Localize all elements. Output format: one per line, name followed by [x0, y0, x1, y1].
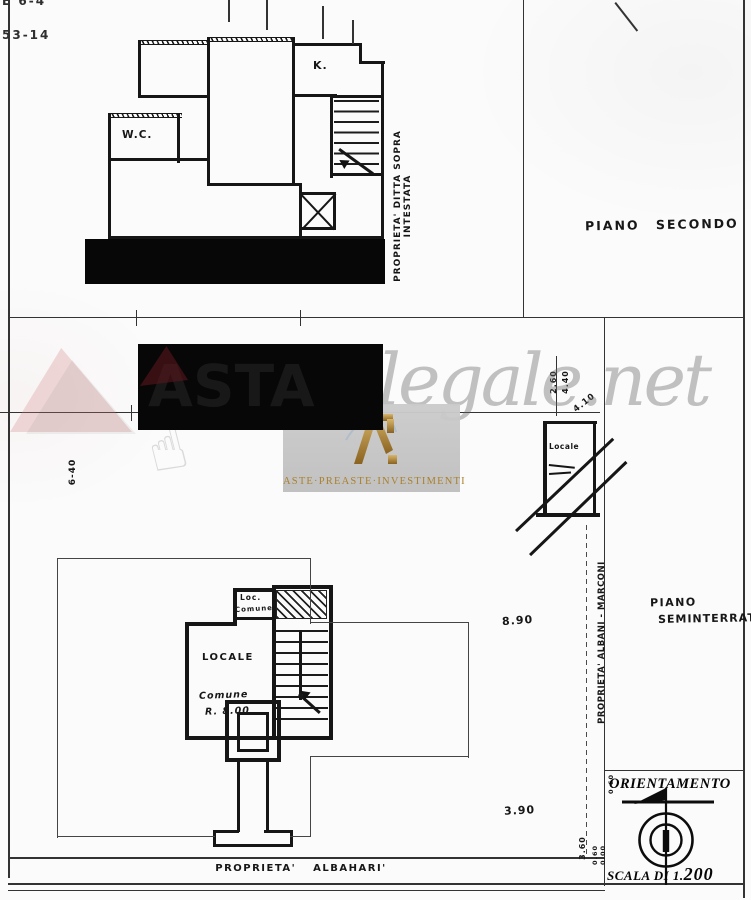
sheet-line: [743, 0, 745, 898]
wall-segment: [329, 585, 333, 740]
basement-loc-label: Loc.: [240, 593, 261, 602]
wall-segment: [330, 95, 383, 98]
wall-segment: [237, 762, 240, 832]
sheet-line: [604, 770, 744, 771]
sheet-line: [310, 622, 469, 623]
sheet-line: [276, 630, 328, 720]
sheet-line: [615, 2, 638, 31]
wall-segment: [177, 113, 180, 163]
wall-segment: [299, 192, 336, 195]
sheet-line: [300, 310, 301, 326]
basement-owner-note: PROPRIETA' ALBANI - MARCONI: [597, 540, 607, 745]
wall-segment: [292, 37, 295, 186]
basement-locale-label: LOCALE: [202, 652, 254, 663]
sheet-line: [131, 405, 132, 421]
basement-title-line2: SEMINTERRATO: [658, 611, 751, 626]
bottom-property-note: PROPRIETA' ALBAHARI': [170, 863, 432, 874]
wall-segment: [237, 749, 269, 752]
wall-segment: [208, 183, 302, 186]
wc-room-label: W.C.: [122, 129, 152, 141]
upper-locale-label: Locale: [549, 442, 579, 451]
scale-note: SCALA DI 1.200: [607, 864, 714, 885]
wall-segment: [225, 758, 281, 762]
wall-segment: [185, 622, 237, 626]
wall-segment: [333, 192, 336, 230]
scale-prefix: SCALA DI 1.: [607, 868, 684, 883]
badge-caption: ASTE·PREASTE·INVESTIMENTI: [283, 476, 460, 487]
wall-segment: [549, 464, 575, 468]
corner-note-line1: E 6-4: [2, 0, 46, 8]
wall-segment: [330, 95, 333, 178]
corner-note-line2: 53-14: [2, 28, 50, 42]
dimension-8-90: 8.90: [502, 613, 534, 628]
sheet-line: [276, 590, 327, 619]
wall-segment: [213, 844, 293, 847]
wall-segment: [185, 622, 189, 740]
wall-segment: [233, 588, 276, 592]
basement-r800-label: R. 8.00: [205, 705, 250, 718]
dimension-3-60: 3.60: [578, 830, 587, 866]
sheet-line: [468, 622, 469, 758]
wall-segment: [233, 617, 275, 620]
sheet-line: [310, 558, 311, 624]
sheet-line: [322, 6, 324, 39]
wall-segment: [549, 471, 571, 474]
sheet-line: [8, 0, 10, 878]
sheet-line: [8, 890, 605, 891]
sheet-line: [57, 836, 215, 837]
floor2-owner-note-line2: INTESTATA: [403, 110, 413, 302]
sheet-line: [138, 40, 210, 45]
sheet-line: [136, 310, 137, 326]
sheet-line: [310, 757, 311, 837]
wall-segment: [277, 700, 281, 762]
sheet-line: [57, 558, 58, 838]
wall-segment: [138, 40, 141, 98]
wall-segment: [185, 736, 333, 740]
wall-segment: [177, 158, 210, 161]
sheet-line: [523, 0, 524, 318]
wall-segment: [593, 421, 596, 517]
redaction-bar-top: [85, 239, 385, 284]
sheet-line: [8, 857, 605, 859]
sheet-line: [8, 317, 744, 318]
wall-segment: [266, 712, 269, 752]
wall-segment: [138, 95, 210, 98]
wall-segment: [330, 173, 383, 176]
floor2-owner-note: PROPRIETA' DITTA SOPRA INTESTATA: [393, 110, 413, 302]
sheet-line: [57, 558, 310, 559]
wall-segment: [108, 113, 111, 239]
sheet-line: [266, 0, 268, 30]
wall-segment: [108, 158, 180, 161]
sheet-line: [352, 20, 354, 44]
dimension-0-00: 0.00: [599, 840, 607, 870]
kitchen-room-label: K.: [313, 59, 328, 72]
basement-title-line1: PIANO: [650, 596, 697, 610]
scanned-floor-plan-sheet: E 6-4 53-14 W.C. K. PROPRIETA' DITTA SOP…: [0, 0, 751, 900]
wall-segment: [207, 37, 210, 186]
wall-segment: [266, 762, 269, 832]
sheet-line: [108, 113, 182, 118]
sheet-line: [228, 0, 230, 22]
floor2-title: PIANO SECONDO: [585, 216, 739, 234]
wall-segment: [213, 830, 239, 833]
sheet-line: [290, 836, 311, 837]
dimension-3-90: 3.90: [504, 803, 536, 818]
basement-comune-label: Comune: [199, 689, 249, 702]
sheet-line: [586, 525, 587, 858]
sheet-line: [207, 37, 295, 42]
dimension-6-40: 6-40: [68, 450, 78, 494]
wall-segment: [381, 61, 384, 240]
scale-value: 200: [684, 864, 714, 884]
dimension-0-60-left: 0.60: [591, 840, 599, 870]
wall-segment: [264, 830, 293, 833]
wall-segment: [237, 712, 240, 752]
wall-segment: [272, 585, 333, 589]
floor2-owner-note-line1: PROPRIETA' DITTA SOPRA: [393, 110, 403, 302]
sheet-line: [310, 756, 469, 757]
